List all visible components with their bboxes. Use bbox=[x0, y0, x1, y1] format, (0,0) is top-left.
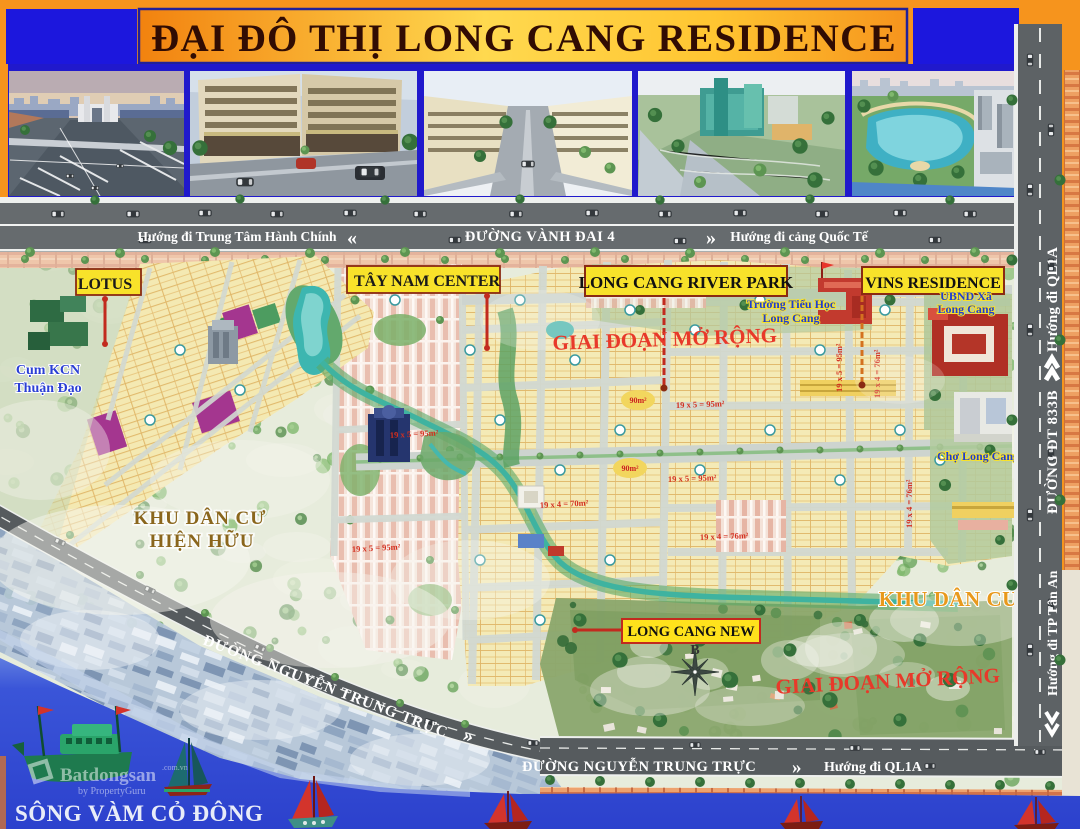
svg-text:19 x 4 = 76m²: 19 x 4 = 76m² bbox=[904, 479, 914, 528]
svg-text:HIỆN HỮU: HIỆN HỮU bbox=[150, 530, 255, 552]
svg-text:ĐẠI ĐÔ THỊ LONG CANG RESIDENCE: ĐẠI ĐÔ THỊ LONG CANG RESIDENCE bbox=[151, 15, 897, 60]
svg-text:19 x 5 = 95m²: 19 x 5 = 95m² bbox=[834, 343, 844, 392]
svg-text:LONG CANG NEW: LONG CANG NEW bbox=[627, 624, 755, 640]
svg-text:Long Cang: Long Cang bbox=[762, 311, 819, 325]
svg-text:19 x 5 = 95m²: 19 x 5 = 95m² bbox=[668, 472, 717, 484]
svg-text:90m²: 90m² bbox=[629, 396, 647, 405]
svg-text:»: » bbox=[792, 757, 802, 778]
svg-text:SÔNG VÀM CỎ ĐÔNG: SÔNG VÀM CỎ ĐÔNG bbox=[15, 800, 263, 826]
svg-text:Trường Tiểu Học: Trường Tiểu Học bbox=[747, 297, 836, 311]
svg-text:Hướng đi TP Tân An: Hướng đi TP Tân An bbox=[1046, 570, 1061, 696]
svg-text:19 x 5 = 95m²: 19 x 5 = 95m² bbox=[676, 398, 725, 410]
svg-text:19 x 4 = 76m²: 19 x 4 = 76m² bbox=[700, 530, 749, 542]
svg-text:«: « bbox=[347, 227, 357, 249]
svg-text:Long Cang: Long Cang bbox=[937, 302, 994, 316]
svg-text:LONG CANG RIVER PARK: LONG CANG RIVER PARK bbox=[579, 273, 794, 292]
svg-text:Hướng đi QL1A: Hướng đi QL1A bbox=[824, 760, 923, 775]
svg-text:Chợ Long Cang: Chợ Long Cang bbox=[937, 449, 1019, 463]
svg-text:Hướng đi Trung Tâm Hành Chính: Hướng đi Trung Tâm Hành Chính bbox=[137, 229, 337, 244]
svg-text:Cụm KCN: Cụm KCN bbox=[16, 363, 80, 378]
svg-text:90m²: 90m² bbox=[621, 464, 639, 473]
svg-text:ĐƯỜNG VÀNH ĐAI 4: ĐƯỜNG VÀNH ĐAI 4 bbox=[465, 228, 615, 245]
svg-text:.com.vn: .com.vn bbox=[162, 763, 188, 772]
svg-text:KHU DÂN CƯ: KHU DÂN CƯ bbox=[134, 507, 267, 529]
svg-text:by PropertyGuru: by PropertyGuru bbox=[78, 786, 146, 797]
svg-text:ĐƯỜNG NGUYỄN TRUNG TRỰC: ĐƯỜNG NGUYỄN TRUNG TRỰC bbox=[522, 757, 756, 775]
svg-text:KHU DÂN CƯ: KHU DÂN CƯ bbox=[879, 587, 1020, 611]
svg-text:LOTUS: LOTUS bbox=[78, 276, 132, 293]
svg-text:TÂY NAM CENTER: TÂY NAM CENTER bbox=[354, 271, 501, 290]
svg-text:Batdongsan: Batdongsan bbox=[60, 765, 157, 786]
svg-text:UBND Xã: UBND Xã bbox=[940, 289, 992, 303]
svg-text:Hướng đi cảng Quốc Tế: Hướng đi cảng Quốc Tế bbox=[730, 229, 869, 244]
svg-text:»: » bbox=[706, 227, 716, 249]
svg-text:Thuận Đạo: Thuận Đạo bbox=[14, 381, 81, 396]
